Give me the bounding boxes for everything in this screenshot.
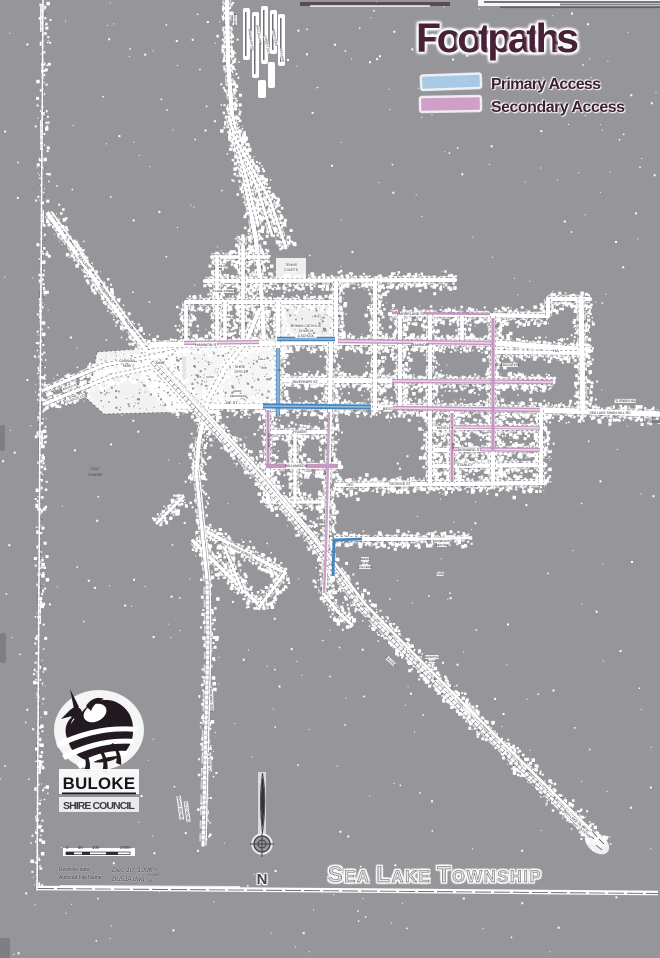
svg-text:LAKE: LAKE: [428, 659, 436, 663]
svg-text:N: N: [257, 871, 268, 888]
svg-text:PELL: PELL: [226, 315, 234, 319]
svg-text:CLARE STREET: CLARE STREET: [213, 289, 236, 293]
svg-text:COURSE: COURSE: [88, 473, 103, 477]
svg-text:SILO: SILO: [219, 264, 227, 268]
svg-text:200m: 200m: [120, 845, 131, 850]
svg-text:EDUCATION: EDUCATION: [501, 363, 520, 367]
svg-text:OVAL: OVAL: [436, 572, 444, 576]
svg-text:RAILWAY SDG: RAILWAY SDG: [209, 688, 214, 712]
svg-text:FRASER: FRASER: [293, 430, 307, 434]
svg-text:BULOKE: BULOKE: [63, 774, 136, 793]
svg-text:HA: HA: [553, 348, 559, 353]
svg-text:Dec 10, 1998: Dec 10, 1998: [112, 867, 153, 874]
svg-text:MOSELEY: MOSELEY: [437, 426, 454, 430]
svg-text:STATION YD: STATION YD: [207, 752, 212, 773]
svg-text:SEA LAKE SWAN HILL RD: SEA LAKE SWAN HILL RD: [589, 411, 631, 415]
svg-text:Autocad File Name:: Autocad File Name:: [59, 875, 103, 881]
svg-text:CALDER: CALDER: [233, 14, 237, 27]
svg-text:MEMORIAL: MEMORIAL: [230, 394, 246, 398]
svg-text:& SCHOOL: & SCHOOL: [298, 334, 315, 338]
svg-text:GOLF: GOLF: [90, 467, 99, 471]
svg-text:SWIM: SWIM: [156, 361, 165, 365]
svg-text:54: 54: [148, 878, 153, 883]
svg-text:ROMAN CATHOLIC: ROMAN CATHOLIC: [291, 324, 322, 328]
svg-text:BE ST: BE ST: [226, 400, 238, 405]
svg-text:CENTRE: CENTRE: [436, 543, 448, 547]
svg-text:COLLEGE: COLLEGE: [358, 565, 372, 569]
svg-text:COURTS: COURTS: [284, 268, 297, 272]
svg-text:50: 50: [78, 845, 83, 850]
svg-text:HALL: HALL: [258, 357, 266, 361]
svg-text:TO SWAN HILL: TO SWAN HILL: [614, 399, 637, 403]
svg-text:OFC: OFC: [451, 443, 455, 450]
svg-text:STANLEY: STANLEY: [457, 463, 474, 467]
svg-text:PARK: PARK: [123, 364, 132, 368]
svg-text:SULLIVAN: SULLIVAN: [267, 433, 271, 447]
svg-text:HANNON: HANNON: [411, 342, 428, 347]
svg-text:TENNIS: TENNIS: [285, 263, 297, 267]
svg-text:Primary Access: Primary Access: [491, 76, 601, 93]
svg-text:MGA: MGA: [148, 866, 157, 871]
svg-text:Footpaths: Footpaths: [416, 15, 579, 61]
svg-text:HANNON ST: HANNON ST: [195, 342, 219, 347]
svg-text:TAVERNER ST: TAVERNER ST: [292, 380, 319, 384]
svg-text:Revision date:: Revision date:: [59, 867, 91, 873]
svg-text:100: 100: [92, 845, 100, 850]
svg-text:GEORGE ST: GEORGE ST: [389, 482, 411, 486]
svg-text:HOWARD ST: HOWARD ST: [458, 448, 482, 452]
svg-text:WILLIAMSON: WILLIAMSON: [285, 464, 308, 468]
svg-text:CHURCH: CHURCH: [299, 329, 314, 333]
svg-text:SHIRE: SHIRE: [235, 365, 245, 369]
svg-text:OFFICE: OFFICE: [234, 370, 246, 374]
svg-text:BEST: BEST: [383, 406, 394, 411]
svg-text:CIVIC: CIVIC: [206, 375, 215, 379]
svg-text:BU53A dwg: BU53A dwg: [112, 876, 145, 883]
svg-text:SHIRE COUNCIL: SHIRE COUNCIL: [63, 800, 135, 812]
svg-text:MORELAND ST: MORELAND ST: [399, 312, 426, 316]
svg-text:CARAVAN: CARAVAN: [119, 359, 135, 363]
svg-text:Secondary Access: Secondary Access: [491, 99, 625, 116]
svg-text:S: S: [277, 369, 281, 371]
svg-text:WAR: WAR: [235, 389, 243, 393]
svg-text:ZONE: ZONE: [148, 872, 159, 877]
svg-text:GEO: GEO: [346, 483, 354, 487]
